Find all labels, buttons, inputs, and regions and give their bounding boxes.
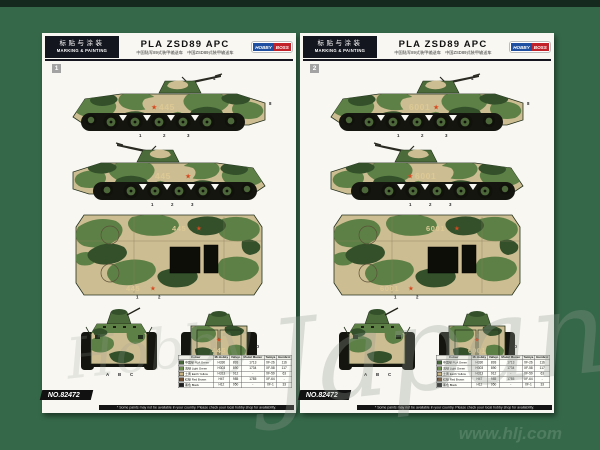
watermark-url: www.hlj.com [459, 424, 562, 444]
kit-title: PLA ZSD89 APC [119, 39, 251, 50]
callout-label: 3 [449, 202, 452, 207]
paint-conversion-table: ColourMr.HobbyVallejoModel MasterTamiyaH… [178, 355, 292, 388]
front-view-artwork [81, 308, 157, 370]
banner-english-label: MARKING & PAINTING [315, 48, 365, 53]
paint-code-mr_hobby: H12 [213, 382, 229, 388]
hull-number-marking: 6001 [409, 102, 430, 112]
colour-swatch [437, 383, 442, 387]
vehicle-views-column: ★ 445 4 8 1 2 3 445 ★ 1 2 3 445 ★ 445 [42, 73, 296, 378]
paint-table-area: ColourMr.HobbyVallejoModel MasterTamiyaH… [178, 355, 293, 403]
callout-label: A [106, 372, 110, 377]
rear-number-marking: 445 [212, 346, 226, 355]
top-view-artwork [76, 215, 262, 295]
kit-subtitle: 中国陆军89式装甲输送车 中国ZSD89式装甲输送车 [377, 50, 509, 56]
colour-swatch [437, 372, 442, 376]
apc-front-view: A B C [336, 302, 418, 378]
rear-number-marking: 6001 [468, 348, 486, 355]
footnote-text: * Some paints may not be available in yo… [357, 405, 552, 410]
product-number-box: NO.82472 [298, 390, 351, 400]
paint-table-row: 黑色 BlackH12950-XF-133 [178, 382, 292, 388]
colour-swatch [437, 361, 442, 365]
paint-table-body: 中国绿 PLA GreenH3308931713XF-26116浅绿 Light… [178, 360, 292, 388]
hull-number-marking: 6001 [415, 171, 436, 181]
colour-swatch [179, 377, 184, 381]
scheme-number-box: 1 [52, 64, 61, 73]
banner-chinese-label: 标贴与涂装 [60, 40, 105, 48]
apc-top-view: 6001 ★ 6001 ★ 1 2 [332, 211, 522, 299]
front-view-artwork [339, 308, 415, 370]
hobbyboss-logo-pill: HOBBYBOSS [509, 41, 551, 53]
apc-front-view: A B C [78, 302, 160, 378]
marking-painting-banner: 标贴与涂装 MARKING & PAINTING [303, 36, 377, 58]
paint-code-vallejo: 950 [488, 382, 500, 388]
callout-label: 2 [429, 202, 432, 207]
callout-label: 2 [421, 133, 424, 138]
paint-colour-name: 黑色 Black [436, 382, 471, 388]
instruction-page-1: 标贴与涂装 MARKING & PAINTING PLA ZSD89 APC 中… [42, 33, 296, 413]
paint-colour-name: 黑色 Black [178, 382, 213, 388]
callout-label: 1 [397, 133, 400, 138]
red-star-marking: ★ [185, 173, 191, 181]
paint-colour-name: 中国绿 PLA Green [436, 360, 471, 366]
red-star-marking: ★ [408, 285, 414, 293]
logo-boss-text: BOSS [532, 43, 549, 51]
callout-label: A [364, 372, 368, 377]
callout-label: 8 [527, 101, 530, 106]
kit-subtitle: 中国陆军89式装甲输送车 中国ZSD89式装甲输送车 [119, 50, 251, 56]
marking-painting-banner: 标贴与涂装 MARKING & PAINTING [45, 36, 119, 58]
header-divider [303, 59, 551, 61]
logo-hobby-text: HOBBY [253, 43, 274, 51]
footnote-text: * Some paints may not be available in yo… [99, 405, 294, 410]
red-star-marking: ★ [216, 336, 222, 344]
scheme-number-box: 2 [310, 64, 319, 73]
paint-code-tamiya: XF-1 [264, 382, 277, 388]
apc-side-view-right: 6001 ★ 4 8 1 2 3 [321, 73, 533, 139]
deck-number-marking: 6001 [426, 224, 445, 233]
callout-label: D [514, 344, 517, 349]
kit-title: PLA ZSD89 APC [377, 39, 509, 50]
page-header: 标贴与涂装 MARKING & PAINTING PLA ZSD89 APC 中… [45, 36, 293, 58]
paint-table-row: 黑色 BlackH12950-XF-133 [436, 382, 550, 388]
colour-swatch [179, 372, 184, 376]
red-star-marking: ★ [196, 225, 202, 233]
colour-swatch [179, 366, 184, 370]
paint-code-mr_hobby: H12 [471, 382, 487, 388]
colour-swatch [179, 383, 184, 387]
paint-colour-name: 中国绿 PLA Green [178, 360, 213, 366]
paint-conversion-table: ColourMr.HobbyVallejoModel MasterTamiyaH… [436, 355, 550, 388]
red-star-marking: ★ [454, 225, 460, 233]
callout-label: 1 [151, 202, 154, 207]
hull-number-marking: 445 [155, 171, 171, 181]
callout-label: 3 [191, 202, 194, 207]
red-star-marking: ★ [407, 173, 413, 181]
callout-label: 1 [409, 202, 412, 207]
product-number: NO.82472 [48, 392, 80, 399]
colour-swatch [437, 366, 442, 370]
page-header: 标贴与涂装 MARKING & PAINTING PLA ZSD89 APC 中… [303, 36, 551, 58]
apc-top-view: 445 ★ 445 ★ 1 2 [74, 211, 264, 299]
logo-boss-text: BOSS [274, 43, 291, 51]
callout-label: D [256, 344, 259, 349]
callout-label: 3 [445, 133, 448, 138]
callout-label: C [130, 372, 134, 377]
paint-colour-name: 土黄 Earth Yellow [178, 371, 213, 377]
banner-chinese-label: 标贴与涂装 [318, 40, 363, 48]
deck-number-marking: 445 [126, 284, 140, 293]
paint-colour-name: 土黄 Earth Yellow [436, 371, 471, 377]
banner-english-label: MARKING & PAINTING [57, 48, 107, 53]
paint-code-vallejo: 950 [230, 382, 242, 388]
colour-swatch [179, 361, 184, 365]
paint-code-humbrol: 33 [535, 382, 550, 388]
paint-code-tamiya: XF-1 [522, 382, 535, 388]
vehicle-views-column: 6001 ★ 4 8 1 2 3 ★ 6001 1 2 3 6001 ★ 600… [300, 73, 554, 378]
instruction-page-2: 标贴与涂装 MARKING & PAINTING PLA ZSD89 APC 中… [300, 33, 554, 413]
red-star-marking: ★ [151, 104, 157, 112]
apc-side-view-left: ★ 6001 1 2 3 [321, 142, 533, 208]
apc-side-view-left: 445 ★ 1 2 3 [63, 142, 275, 208]
red-star-marking: ★ [474, 336, 480, 344]
paint-code-model_master: - [242, 382, 264, 388]
logo-hobby-text: HOBBY [511, 43, 532, 51]
callout-label: B [118, 372, 121, 377]
callout-label: 3 [187, 133, 190, 138]
hull-number-marking: 445 [159, 102, 175, 112]
paint-table-area: ColourMr.HobbyVallejoModel MasterTamiyaH… [436, 355, 551, 403]
top-border-strip [0, 0, 600, 7]
product-number-box: NO.82472 [40, 390, 93, 400]
header-title-block: PLA ZSD89 APC 中国陆军89式装甲输送车 中国ZSD89式装甲输送车 [119, 36, 251, 58]
product-number: NO.82472 [306, 392, 338, 399]
hobbyboss-logo-pill: HOBBYBOSS [251, 41, 293, 53]
footnote-bar: * Some paints may not be available in yo… [99, 405, 294, 412]
paint-code-humbrol: 33 [277, 382, 292, 388]
callout-label: B [376, 372, 379, 377]
instruction-sheet-scan: 标贴与涂装 MARKING & PAINTING PLA ZSD89 APC 中… [0, 0, 600, 450]
colour-swatch [437, 377, 442, 381]
hobbyboss-logo: HOBBYBOSS [509, 36, 551, 58]
callout-label: C [388, 372, 392, 377]
hobbyboss-logo: HOBBYBOSS [251, 36, 293, 58]
paint-table-body: 中国绿 PLA GreenH3308931713XF-26116浅绿 Light… [436, 360, 550, 388]
callout-label: 2 [163, 133, 166, 138]
callout-label: 8 [269, 101, 272, 106]
callout-label: 2 [171, 202, 174, 207]
apc-side-view-right: ★ 445 4 8 1 2 3 [63, 73, 275, 139]
header-divider [45, 59, 293, 61]
deck-number-marking: 445 [172, 224, 186, 233]
footnote-bar: * Some paints may not be available in yo… [357, 405, 552, 412]
paint-code-model_master: - [500, 382, 522, 388]
header-title-block: PLA ZSD89 APC 中国陆军89式装甲输送车 中国ZSD89式装甲输送车 [377, 36, 509, 58]
red-star-marking: ★ [150, 285, 156, 293]
callout-label: 1 [139, 133, 142, 138]
red-star-marking: ★ [433, 104, 439, 112]
deck-number-marking: 6001 [380, 284, 399, 293]
